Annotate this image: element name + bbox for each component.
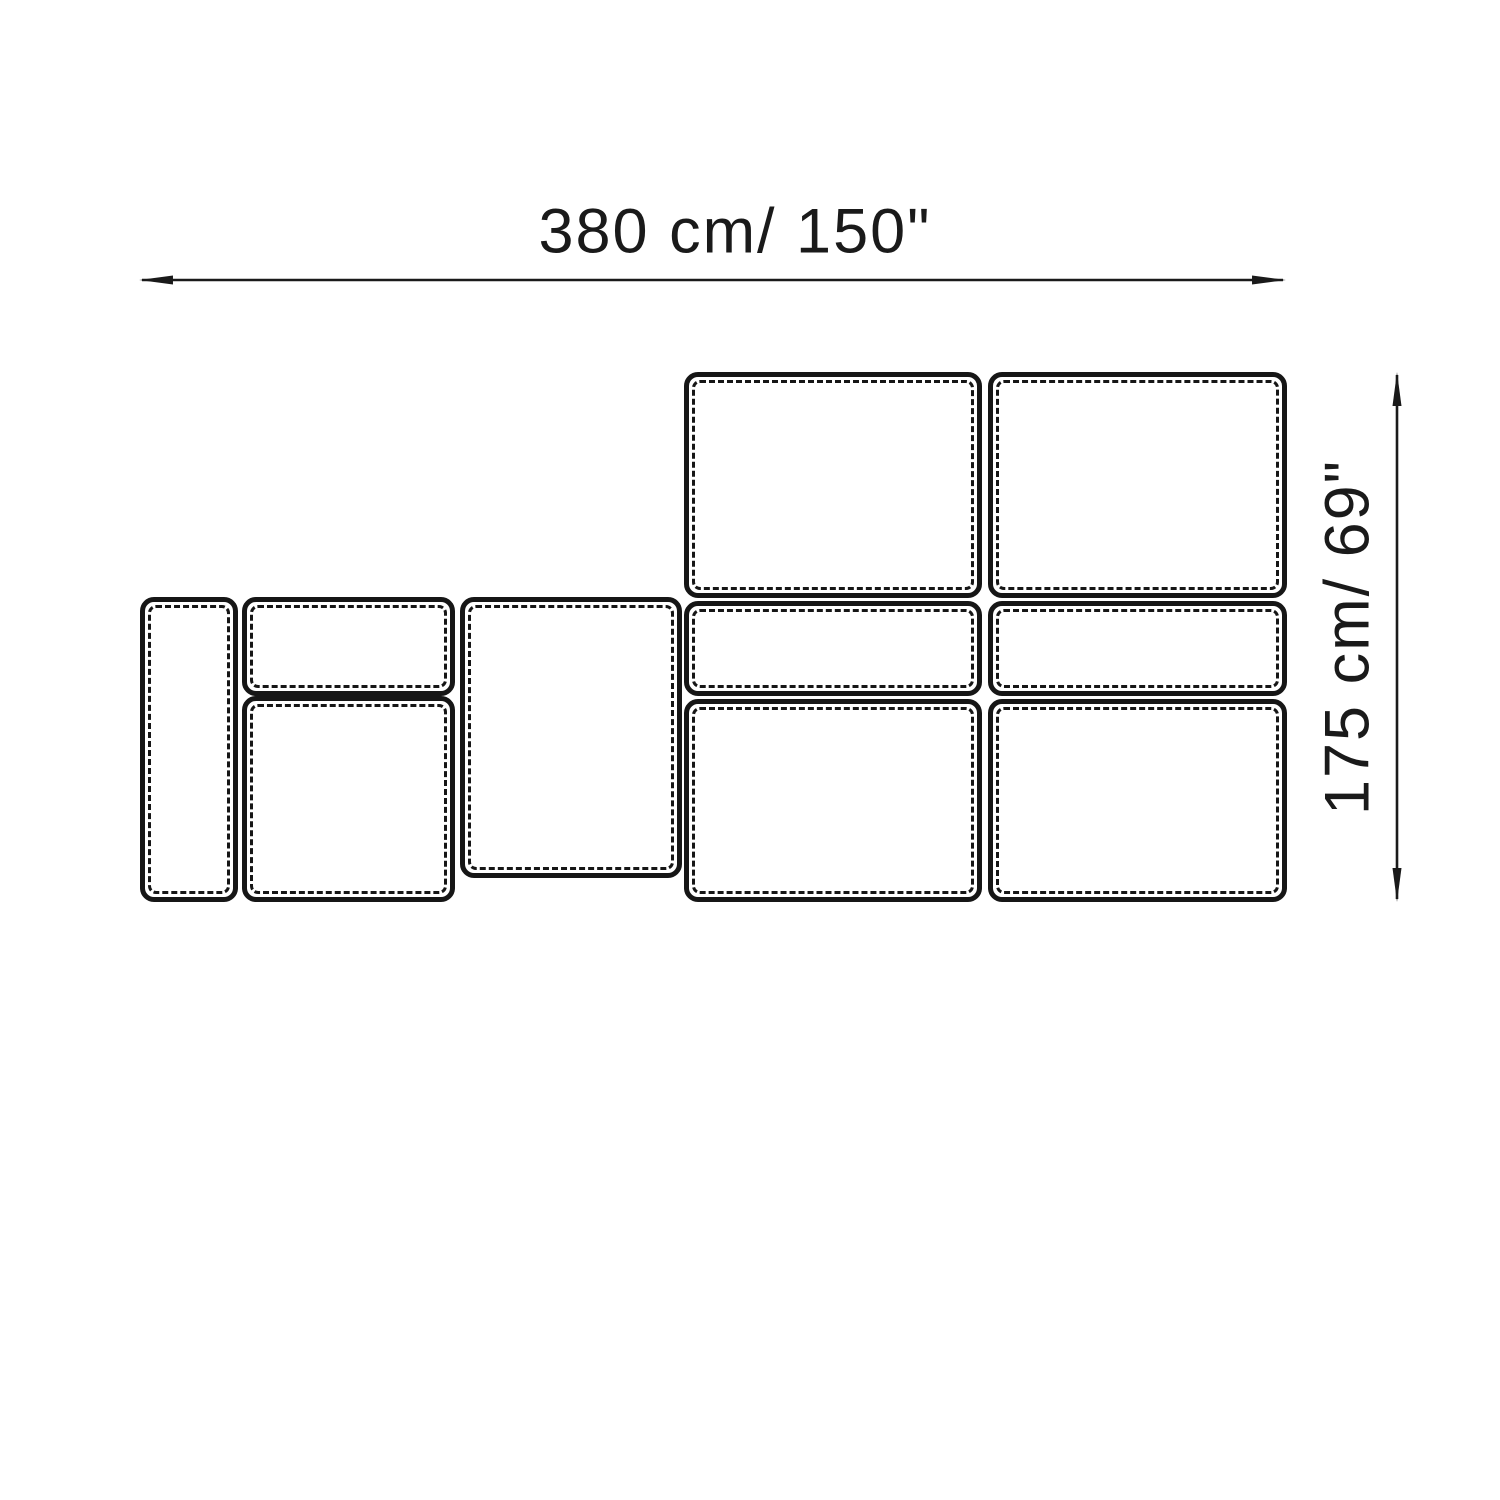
right-module-2-seat-cushion-outline [996, 707, 1279, 894]
left-module-seat [242, 696, 455, 902]
left-module-backrest [242, 597, 455, 696]
right-module-1-backrest [684, 601, 982, 696]
sofa-plan-diagram: 380 cm/ 150" 175 cm/ 69" [0, 0, 1500, 1500]
left-module-backrest-cushion-outline [250, 605, 447, 688]
right-module-2-top-cushion-outline [996, 380, 1279, 590]
right-module-1-seat-cushion-outline [692, 707, 974, 894]
center-ottoman-module [460, 597, 682, 878]
right-module-1-top-cushion [684, 372, 982, 598]
right-module-2-backrest-cushion-outline [996, 609, 1279, 688]
right-module-1-top-cushion-outline [692, 380, 974, 590]
left-module-seat-cushion-outline [250, 704, 447, 894]
left-arm-module [140, 597, 238, 902]
left-arm-cushion-outline [148, 605, 230, 894]
right-module-2-seat [988, 699, 1287, 902]
center-ottoman-cushion-outline [468, 605, 674, 870]
right-module-2-top-cushion [988, 372, 1287, 598]
right-module-1-backrest-cushion-outline [692, 609, 974, 688]
height-dimension-label: 175 cm/ 69" [1317, 459, 1380, 815]
width-dimension-label: 380 cm/ 150" [538, 201, 931, 264]
right-module-1-seat [684, 699, 982, 902]
right-module-2-backrest [988, 601, 1287, 696]
